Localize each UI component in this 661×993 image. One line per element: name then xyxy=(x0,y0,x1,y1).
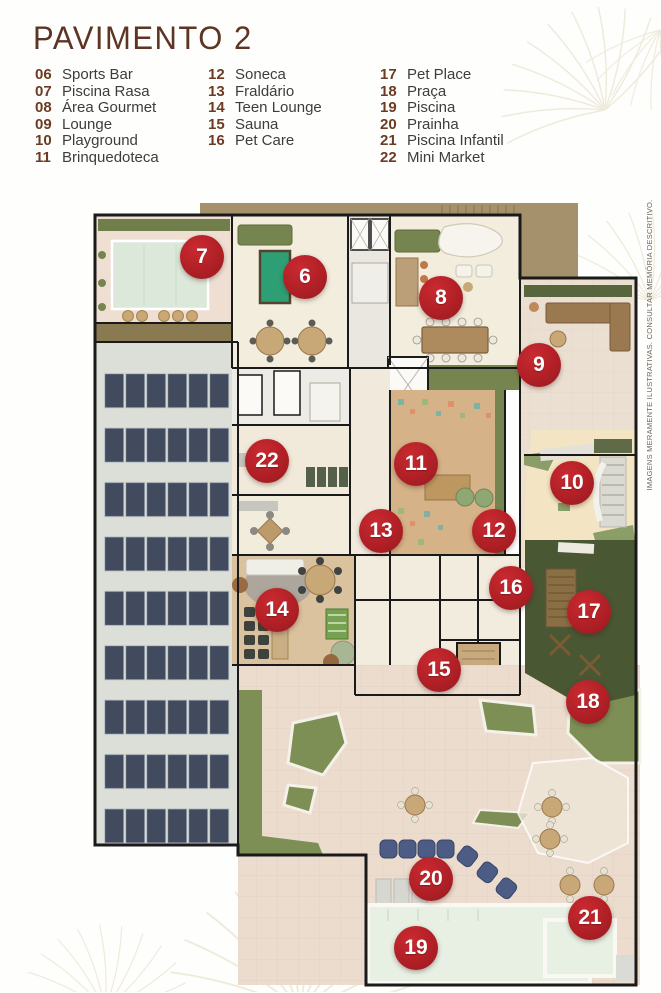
legend-item-14: 14Teen Lounge xyxy=(208,100,380,117)
legend-item-21: 21Piscina Infantil xyxy=(380,133,620,150)
legend-item-label: Praça xyxy=(407,83,446,100)
zone-lounge-terrace xyxy=(520,278,636,455)
legend-item-number: 21 xyxy=(380,133,407,150)
legend-item-label: Sports Bar xyxy=(62,66,133,83)
legend-item-08: 08Área Gourmet xyxy=(35,100,208,117)
legend-item-09: 09Lounge xyxy=(35,117,208,134)
zone-teen-lounge xyxy=(232,555,355,670)
legend-item-16: 16Pet Care xyxy=(208,133,380,150)
legend-item-10: 10Playground xyxy=(35,133,208,150)
disclaimer-text: IMAGENS MERAMENTE ILUSTRATIVAS. CONSULTA… xyxy=(645,195,657,495)
legend-item-11: 11Brinquedoteca xyxy=(35,150,208,167)
legend-item-label: Pet Care xyxy=(235,132,294,149)
legend-column: 06Sports Bar07Piscina Rasa08Área Gourmet… xyxy=(35,67,208,167)
legend-item-number: 17 xyxy=(380,67,407,84)
legend-item-label: Piscina Infantil xyxy=(407,132,504,149)
legend-item-number: 18 xyxy=(380,84,407,101)
legend-item-number: 20 xyxy=(380,117,407,134)
legend-item-label: Área Gourmet xyxy=(62,99,156,116)
zone-minimarket-fraldario xyxy=(232,368,390,555)
legend-item-number: 07 xyxy=(35,84,62,101)
legend-item-label: Playground xyxy=(62,132,138,149)
amenities-legend: 06Sports Bar07Piscina Rasa08Área Gourmet… xyxy=(35,67,620,167)
zone-area-gourmet xyxy=(390,215,520,365)
legend-column: 12Soneca13Fraldário14Teen Lounge15Sauna1… xyxy=(208,67,380,167)
legend-item-19: 19Piscina xyxy=(380,100,620,117)
zone-elevator-core xyxy=(348,215,390,368)
legend-column: 17Pet Place18Praça19Piscina20Prainha21Pi… xyxy=(380,67,620,167)
zone-solar-roof xyxy=(95,323,238,849)
legend-item-20: 20Prainha xyxy=(380,117,620,134)
legend-item-label: Pet Place xyxy=(407,66,471,83)
legend-item-label: Lounge xyxy=(62,116,112,133)
legend-item-number: 22 xyxy=(380,150,407,167)
page-title: PAVIMENTO 2 xyxy=(33,20,253,57)
legend-item-number: 06 xyxy=(35,67,62,84)
legend-item-label: Sauna xyxy=(235,116,278,133)
legend-item-06: 06Sports Bar xyxy=(35,67,208,84)
legend-item-22: 22Mini Market xyxy=(380,150,620,167)
brochure-page: PAVIMENTO 2 06Sports Bar07Piscina Rasa08… xyxy=(0,0,661,992)
floor-plan xyxy=(88,203,643,988)
legend-item-label: Piscina Rasa xyxy=(62,83,150,100)
legend-item-number: 08 xyxy=(35,100,62,117)
legend-item-17: 17Pet Place xyxy=(380,67,620,84)
floor-plan-drawing xyxy=(88,203,643,988)
legend-item-number: 16 xyxy=(208,133,235,150)
legend-item-13: 13Fraldário xyxy=(208,84,380,101)
legend-item-12: 12Soneca xyxy=(208,67,380,84)
legend-item-label: Soneca xyxy=(235,66,286,83)
zone-piscina-rasa xyxy=(95,215,232,323)
legend-item-number: 10 xyxy=(35,133,62,150)
legend-item-number: 19 xyxy=(380,100,407,117)
zone-sports-bar xyxy=(232,215,348,368)
legend-item-number: 14 xyxy=(208,100,235,117)
legend-item-label: Fraldário xyxy=(235,83,294,100)
legend-item-number: 15 xyxy=(208,117,235,134)
legend-item-number: 13 xyxy=(208,84,235,101)
legend-item-label: Teen Lounge xyxy=(235,99,322,116)
legend-item-label: Piscina xyxy=(407,99,455,116)
legend-item-number: 12 xyxy=(208,67,235,84)
zone-pet-place xyxy=(525,540,636,707)
legend-item-number: 09 xyxy=(35,117,62,134)
legend-item-label: Prainha xyxy=(407,116,459,133)
legend-item-18: 18Praça xyxy=(380,84,620,101)
legend-item-number: 11 xyxy=(35,150,62,167)
legend-item-label: Brinquedoteca xyxy=(62,149,159,166)
legend-item-15: 15Sauna xyxy=(208,117,380,134)
legend-item-label: Mini Market xyxy=(407,149,485,166)
legend-item-07: 07Piscina Rasa xyxy=(35,84,208,101)
zone-brinquedoteca-soneca xyxy=(390,390,505,555)
